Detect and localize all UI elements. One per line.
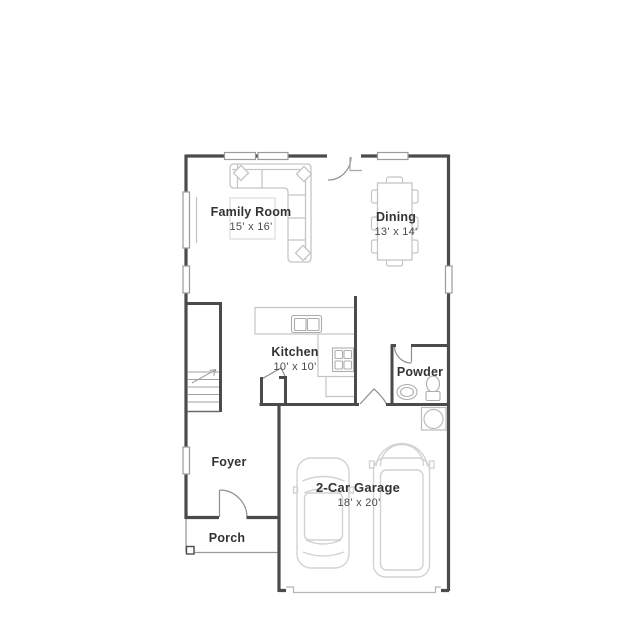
toilet bbox=[426, 376, 440, 401]
dining-dims: 13' x 14' bbox=[375, 226, 418, 238]
porch-post bbox=[187, 547, 195, 555]
staircase bbox=[188, 370, 220, 403]
kitchen-label: Kitchen bbox=[271, 345, 318, 359]
suv-car bbox=[370, 444, 435, 577]
sedan-car bbox=[294, 458, 354, 568]
window bbox=[183, 447, 190, 474]
car-mirror bbox=[370, 461, 375, 468]
pantry-walls bbox=[262, 377, 288, 404]
kitchen-sink bbox=[292, 316, 322, 333]
window bbox=[378, 153, 409, 160]
garage-label: 2-Car Garage bbox=[316, 480, 400, 495]
foyer-label: Foyer bbox=[211, 455, 246, 469]
floor-plan-drawing: Family Room 15' x 16' Dining 13' x 14' K… bbox=[0, 0, 640, 640]
water-heater bbox=[422, 408, 447, 431]
top-door-jamb bbox=[350, 157, 362, 171]
kitchen-dims: 10' x 10' bbox=[274, 361, 317, 373]
top-door-arc bbox=[328, 157, 351, 180]
car-mirror bbox=[294, 487, 298, 493]
range-stove bbox=[333, 348, 354, 372]
powder-label: Powder bbox=[397, 365, 443, 379]
garage-dims: 18' x 20' bbox=[338, 497, 381, 509]
window bbox=[225, 153, 256, 160]
porch-label: Porch bbox=[209, 531, 245, 545]
powder-sink bbox=[397, 385, 417, 400]
family-room-dims: 15' x 16' bbox=[230, 221, 273, 233]
garage-entry-door bbox=[360, 389, 387, 404]
dining-label: Dining bbox=[376, 210, 416, 224]
floor-plan-page: Family Room 15' x 16' Dining 13' x 14' K… bbox=[0, 0, 640, 640]
front-door-arc bbox=[220, 490, 248, 518]
window bbox=[258, 153, 288, 160]
family-room-label: Family Room bbox=[211, 205, 292, 219]
garage-door-recess bbox=[286, 587, 441, 593]
window bbox=[183, 266, 190, 293]
window bbox=[183, 192, 190, 248]
window bbox=[446, 266, 453, 293]
car-mirror bbox=[430, 461, 435, 468]
powder-door-arc bbox=[395, 346, 412, 363]
